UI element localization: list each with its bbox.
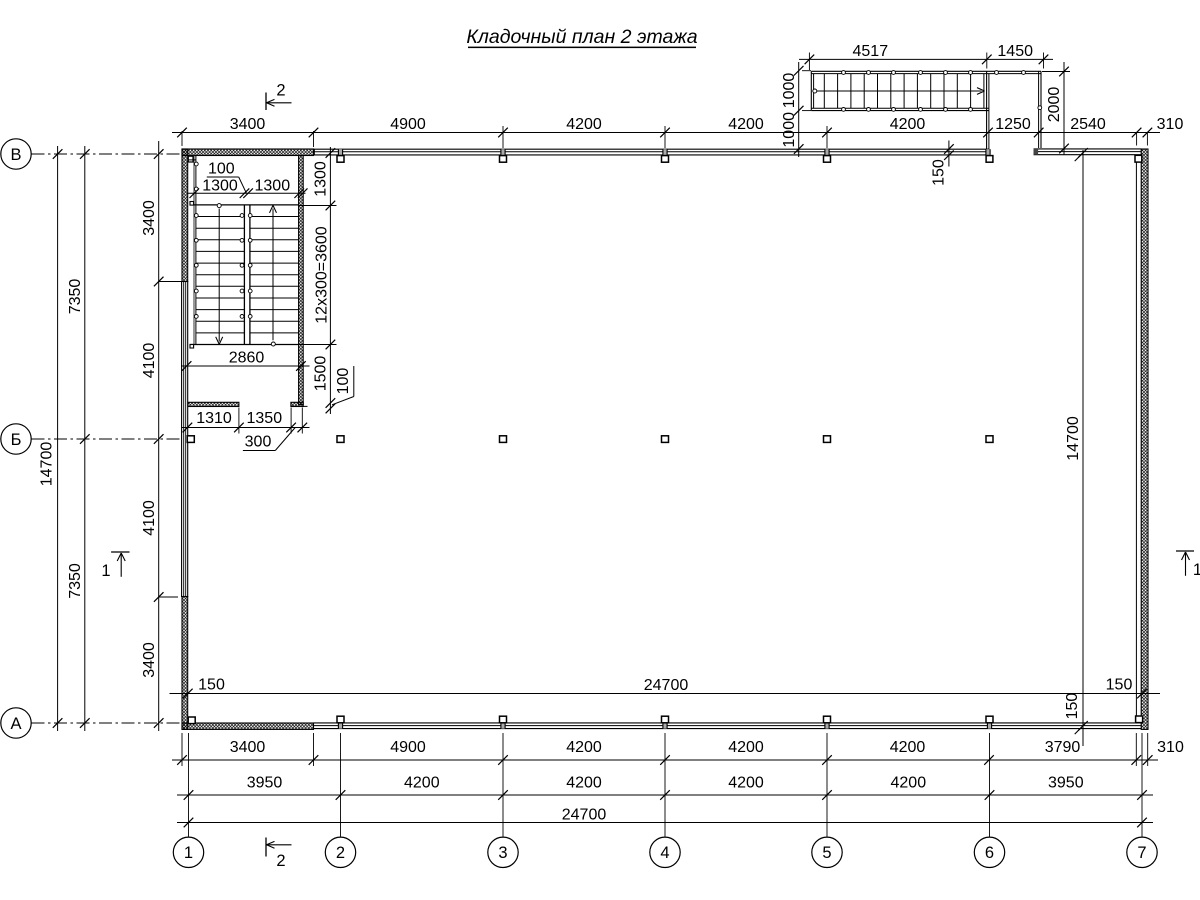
svg-text:1: 1 — [184, 844, 193, 862]
svg-text:1300: 1300 — [202, 178, 238, 195]
svg-text:3: 3 — [498, 844, 507, 862]
svg-text:1250: 1250 — [995, 116, 1031, 133]
svg-text:150: 150 — [931, 159, 948, 186]
svg-text:300: 300 — [245, 434, 272, 451]
svg-text:4200: 4200 — [566, 116, 602, 133]
svg-text:4200: 4200 — [890, 116, 926, 133]
svg-text:4200: 4200 — [566, 739, 602, 756]
svg-text:4200: 4200 — [890, 739, 926, 756]
svg-text:2: 2 — [276, 852, 285, 870]
svg-text:3790: 3790 — [1045, 739, 1081, 756]
svg-text:1000: 1000 — [781, 112, 798, 148]
svg-text:14700: 14700 — [1065, 416, 1082, 461]
svg-text:2000: 2000 — [1046, 87, 1063, 123]
svg-text:4100: 4100 — [141, 500, 158, 536]
svg-text:Б: Б — [11, 431, 22, 449]
svg-text:100: 100 — [335, 368, 352, 395]
svg-text:3950: 3950 — [247, 775, 283, 792]
svg-text:7350: 7350 — [67, 279, 84, 315]
svg-text:1000: 1000 — [781, 73, 798, 109]
svg-text:6: 6 — [985, 844, 994, 862]
svg-text:4900: 4900 — [390, 116, 426, 133]
svg-text:2540: 2540 — [1070, 116, 1106, 133]
svg-text:1450: 1450 — [997, 43, 1033, 60]
svg-text:7350: 7350 — [67, 563, 84, 599]
svg-text:150: 150 — [1106, 677, 1133, 694]
svg-text:4517: 4517 — [853, 43, 889, 60]
svg-text:2860: 2860 — [229, 350, 265, 367]
svg-text:310: 310 — [1157, 739, 1184, 756]
svg-text:3400: 3400 — [230, 116, 266, 133]
svg-text:4200: 4200 — [566, 775, 602, 792]
svg-text:7: 7 — [1137, 844, 1146, 862]
svg-text:24700: 24700 — [644, 677, 689, 694]
svg-text:4200: 4200 — [404, 775, 440, 792]
svg-text:3950: 3950 — [1048, 775, 1084, 792]
svg-text:1300: 1300 — [255, 178, 291, 195]
svg-text:100: 100 — [208, 161, 235, 178]
svg-text:4200: 4200 — [728, 775, 764, 792]
svg-text:1350: 1350 — [247, 410, 283, 427]
svg-text:1500: 1500 — [313, 356, 330, 392]
svg-text:14700: 14700 — [39, 442, 56, 487]
svg-text:4: 4 — [660, 844, 669, 862]
svg-text:1: 1 — [101, 562, 110, 580]
svg-text:310: 310 — [1157, 116, 1184, 133]
svg-text:4100: 4100 — [141, 343, 158, 379]
svg-text:1310: 1310 — [196, 410, 232, 427]
svg-text:4200: 4200 — [728, 739, 764, 756]
svg-text:5: 5 — [822, 844, 831, 862]
svg-text:150: 150 — [1064, 693, 1081, 720]
svg-text:4200: 4200 — [728, 116, 764, 133]
svg-text:4900: 4900 — [390, 739, 426, 756]
svg-text:3400: 3400 — [141, 200, 158, 236]
svg-text:А: А — [10, 715, 21, 733]
svg-text:1300: 1300 — [313, 161, 330, 197]
svg-text:150: 150 — [198, 677, 225, 694]
svg-text:12x300=3600: 12x300=3600 — [314, 226, 331, 324]
svg-text:В: В — [10, 146, 21, 164]
svg-text:2: 2 — [276, 82, 285, 100]
svg-text:2: 2 — [336, 844, 345, 862]
svg-text:3400: 3400 — [230, 739, 266, 756]
svg-text:1: 1 — [1193, 561, 1200, 579]
svg-text:3400: 3400 — [141, 642, 158, 678]
svg-text:Кладочный план 2 этажа: Кладочный план 2 этажа — [466, 26, 697, 48]
svg-text:24700: 24700 — [562, 807, 607, 824]
svg-text:4200: 4200 — [891, 775, 927, 792]
